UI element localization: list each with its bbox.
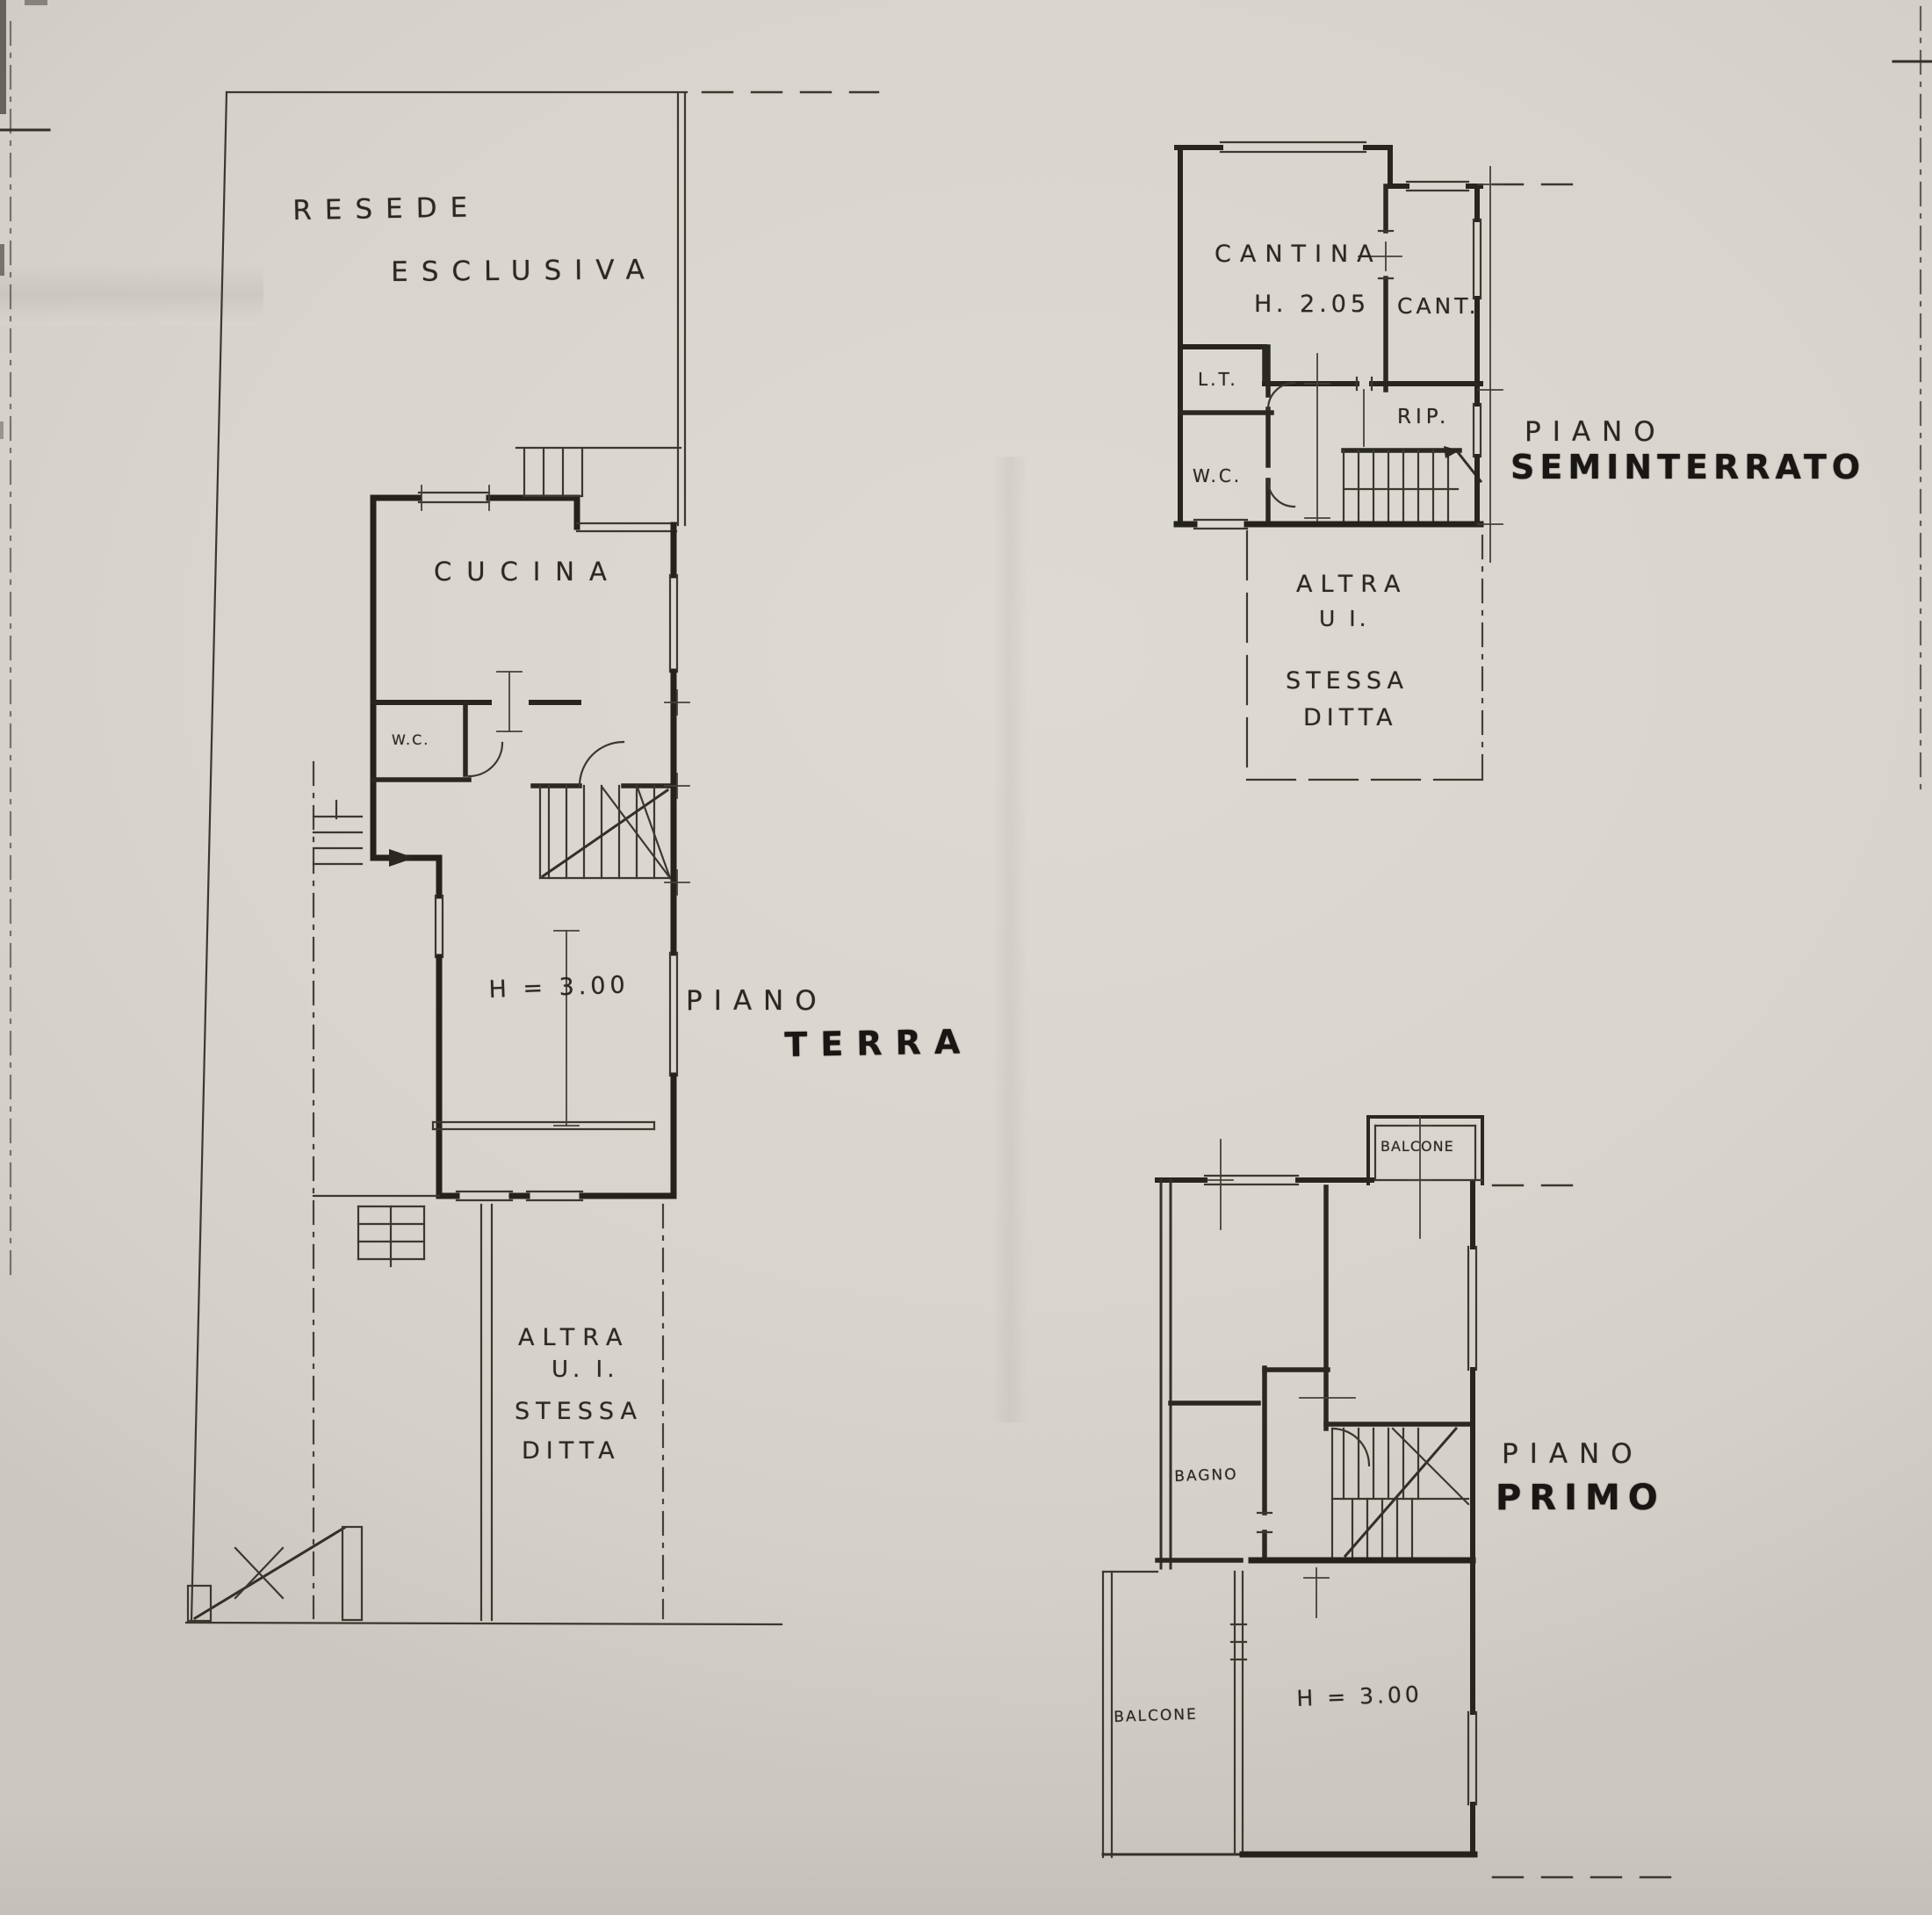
floor-plan-scan: RESEDE ESCLUSIVA CUCINA W.C. H = 3.00 PI… [0, 0, 1932, 1915]
label-cant: CANT. [1397, 293, 1480, 319]
label-piano-seminterrato-2: SEMINTERRATO [1510, 448, 1865, 486]
label-ditta-terra: DITTA [522, 1437, 621, 1465]
label-bagno: BAGNO [1174, 1465, 1238, 1486]
label-balcone-top: BALCONE [1381, 1138, 1454, 1155]
label-ui-terra: U. I. [551, 1357, 619, 1383]
label-wc-seminterrato: W.C. [1193, 465, 1242, 486]
label-ditta-seminterrato: DITTA [1303, 704, 1398, 731]
label-resede: RESEDE [292, 191, 480, 227]
plan-linework [0, 0, 1932, 1915]
terra-plan-drawing [186, 92, 878, 1624]
label-stessa-terra: STESSA [515, 1398, 643, 1425]
label-wc-terra: W.C. [392, 731, 429, 748]
label-stessa-seminterrato: STESSA [1286, 667, 1409, 695]
label-height-primo: H = 3.00 [1296, 1681, 1423, 1711]
boundary-lines [0, 7, 1932, 1278]
label-piano-seminterrato-1: PIANO [1525, 416, 1667, 448]
label-cucina: CUCINA [434, 557, 622, 587]
label-ui-seminterrato: U I. [1319, 606, 1370, 631]
label-height-terra: H = 3.00 [488, 971, 630, 1004]
label-altra-terra: ALTRA [518, 1324, 630, 1351]
label-piano-terra-2: TERRA [784, 1022, 974, 1064]
label-cantina-height: H. 2.05 [1254, 291, 1370, 318]
label-piano-primo-2: PRIMO [1496, 1478, 1666, 1518]
label-esclusiva: ESCLUSIVA [391, 254, 658, 288]
label-lt: L.T. [1198, 369, 1238, 390]
label-piano-primo-1: PIANO [1502, 1438, 1644, 1470]
label-balcone-bottom: BALCONE [1114, 1706, 1198, 1726]
label-piano-terra-1: PIANO [686, 985, 828, 1017]
label-rip: RIP. [1397, 406, 1450, 428]
label-altra-seminterrato: ALTRA [1296, 571, 1408, 598]
label-cantina: CANTINA [1215, 241, 1382, 268]
